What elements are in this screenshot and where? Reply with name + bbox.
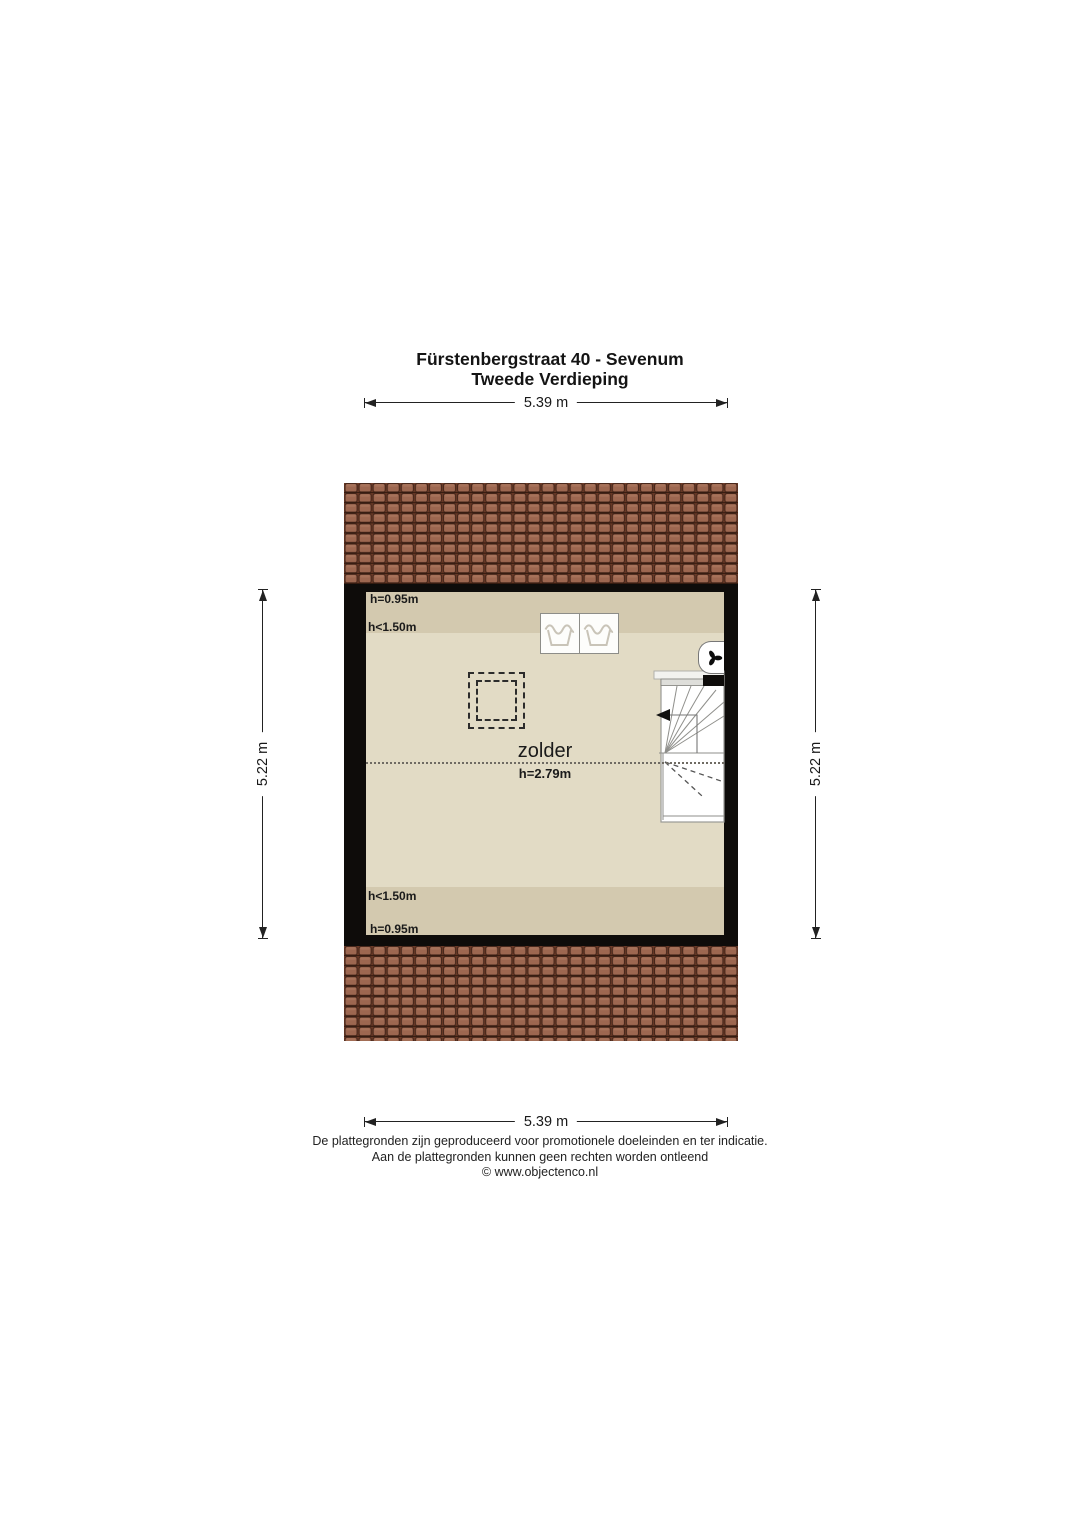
floorplan-page: Fürstenbergstraat 40 - Sevenum Tweede Ve… — [0, 0, 1080, 1527]
arrow-down-icon — [259, 927, 267, 938]
wash-tub-icon — [580, 614, 617, 652]
arrow-up-icon — [259, 590, 267, 601]
height-contour-line — [366, 762, 724, 764]
arrow-down-icon — [812, 927, 820, 938]
dimension-left-label: 5.22 m — [255, 732, 271, 796]
arrow-left-icon — [365, 1118, 376, 1126]
fan-icon — [705, 649, 723, 667]
arrow-up-icon — [812, 590, 820, 601]
arrow-right-icon — [716, 1118, 727, 1126]
page-title: Fürstenbergstraat 40 - Sevenum Tweede Ve… — [250, 350, 850, 389]
room-height-label: h=2.79m — [519, 767, 571, 780]
height-label-bottom-wall: h=0.95m — [370, 922, 418, 936]
arrow-left-icon — [365, 399, 376, 407]
roof-tiles-bottom — [344, 946, 738, 1041]
dimension-right-label: 5.22 m — [808, 732, 824, 796]
ventilation-unit-icon — [698, 641, 724, 674]
roof-tiles-top — [344, 483, 738, 584]
title-address: Fürstenbergstraat 40 - Sevenum — [250, 350, 850, 370]
room-name-label: zolder — [518, 741, 572, 761]
skylight-inner-outline — [476, 680, 517, 721]
arrow-right-icon — [716, 399, 727, 407]
footer-disclaimer-line1: De plattegronden zijn geproduceerd voor … — [0, 1134, 1080, 1148]
footer-disclaimer-line2: Aan de plattegronden kunnen geen rechten… — [0, 1150, 1080, 1164]
height-label-top-slope: h<1.50m — [368, 620, 416, 634]
dimension-bottom-label: 5.39 m — [515, 1114, 577, 1130]
title-floor: Tweede Verdieping — [250, 370, 850, 390]
height-label-bottom-slope: h<1.50m — [368, 889, 416, 903]
washing-machine-icon — [579, 613, 619, 654]
wash-tub-icon — [541, 614, 578, 652]
low-height-zone-bottom — [366, 887, 724, 935]
dimension-top-label: 5.39 m — [515, 395, 577, 411]
washing-machine-icon — [540, 613, 580, 654]
staircase — [634, 668, 726, 826]
height-label-top-wall: h=0.95m — [370, 592, 418, 606]
footer-copyright: © www.objectenco.nl — [0, 1165, 1080, 1179]
